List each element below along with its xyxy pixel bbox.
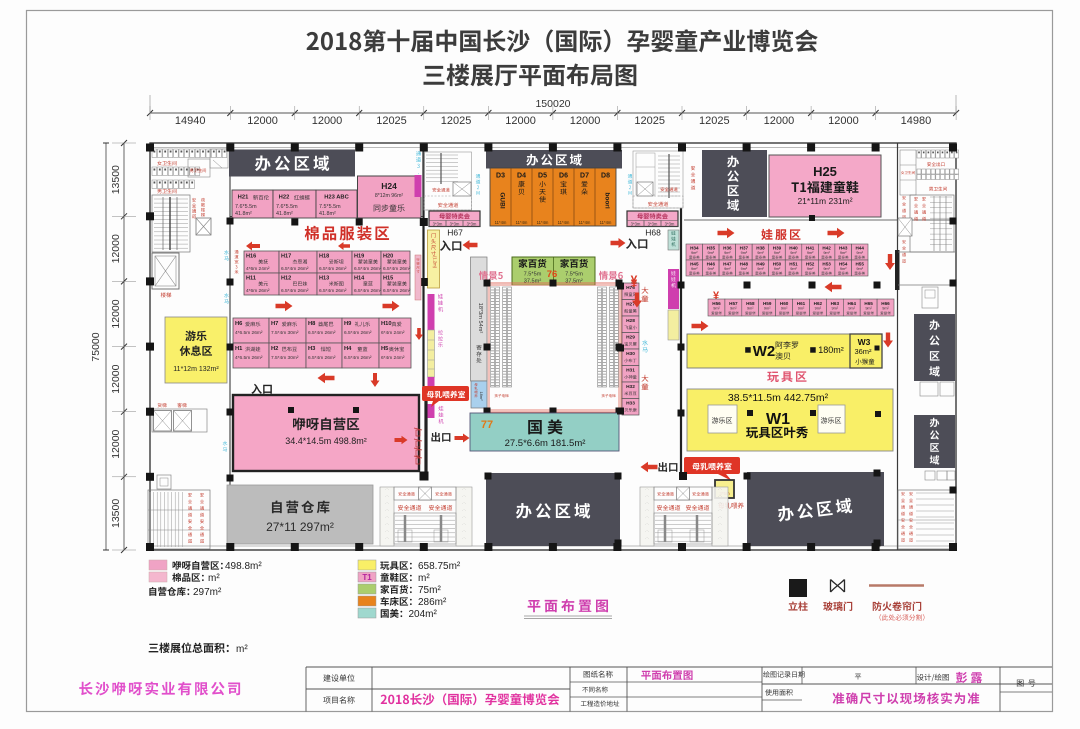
- svg-text:9m²: 9m²: [823, 251, 830, 255]
- svg-text:.·.: .·.: [645, 521, 649, 526]
- svg-text:H38: H38: [756, 246, 765, 251]
- svg-text:9m²: 9m²: [774, 251, 781, 255]
- svg-text:3*3m: 3*3m: [450, 221, 460, 226]
- svg-text:.·.: .·.: [718, 507, 722, 512]
- svg-text:H28: H28: [626, 318, 635, 324]
- svg-text:18*3m 54m²: 18*3m 54m²: [477, 303, 483, 334]
- svg-text:6.5*4m 26m²: 6.5*4m 26m²: [354, 288, 382, 294]
- svg-text:H1: H1: [235, 346, 243, 352]
- svg-text:4*6.5m 26m²: 4*6.5m 26m²: [235, 355, 263, 361]
- svg-text:11*12m 132m²: 11*12m 132m²: [173, 366, 219, 373]
- svg-text:180m²: 180m²: [818, 345, 844, 355]
- svg-text:H17: H17: [281, 254, 291, 260]
- svg-text:13500: 13500: [110, 499, 122, 528]
- svg-text:.·.: .·.: [462, 535, 466, 540]
- svg-text:.·.: .·.: [718, 528, 722, 533]
- svg-text:9m²: 9m²: [691, 251, 698, 255]
- svg-text:658.75m²: 658.75m²: [418, 561, 461, 572]
- svg-text:9m²: 9m²: [790, 267, 797, 271]
- svg-text:H55: H55: [855, 262, 864, 267]
- svg-text:37.5m²: 37.5m²: [524, 279, 542, 285]
- svg-text:boori: boori: [604, 192, 611, 208]
- svg-text:7.6*5.5m: 7.6*5.5m: [276, 204, 298, 210]
- svg-text:6.5*4m 26m²: 6.5*4m 26m²: [344, 355, 372, 361]
- svg-text:D3: D3: [496, 173, 505, 180]
- svg-text:6.5*4m 26m²: 6.5*4m 26m²: [281, 266, 309, 272]
- svg-text:27.5*6.6m 181.5m²: 27.5*6.6m 181.5m²: [505, 438, 586, 449]
- svg-text:12000: 12000: [110, 429, 122, 458]
- svg-text:.·.: .·.: [645, 493, 649, 498]
- svg-text:9m²: 9m²: [865, 307, 872, 311]
- svg-text:9m²: 9m²: [781, 307, 788, 311]
- svg-text:6.5*4m 26m²: 6.5*4m 26m²: [308, 355, 336, 361]
- svg-text:H23 ABC: H23 ABC: [324, 195, 349, 201]
- svg-text:11*4m: 11*4m: [537, 220, 549, 225]
- svg-text:H18: H18: [319, 254, 329, 260]
- svg-text:12000: 12000: [110, 234, 122, 263]
- svg-text:7.6*5.5m: 7.6*5.5m: [235, 204, 257, 210]
- svg-text:9m²: 9m²: [856, 251, 863, 255]
- svg-text:H53: H53: [822, 262, 831, 267]
- svg-text:297m²: 297m²: [193, 587, 222, 598]
- svg-text:H41: H41: [806, 246, 815, 251]
- svg-text:H45: H45: [690, 262, 699, 267]
- svg-text:7.5*5m: 7.5*5m: [565, 272, 583, 278]
- svg-text:.·.: .·.: [385, 493, 389, 498]
- svg-text:.·.: .·.: [645, 514, 649, 519]
- svg-text:H52: H52: [806, 262, 815, 267]
- svg-text:9m²: 9m²: [798, 307, 805, 311]
- svg-text:12000: 12000: [570, 115, 601, 127]
- svg-text:H10: H10: [381, 321, 392, 327]
- svg-text:H47: H47: [723, 262, 732, 267]
- svg-text:H40: H40: [789, 246, 798, 251]
- svg-text:9m²: 9m²: [790, 251, 797, 255]
- svg-text:6.5*4m 26m²: 6.5*4m 26m²: [383, 288, 411, 294]
- svg-text:H6: H6: [235, 321, 243, 327]
- svg-text:.·.: .·.: [385, 507, 389, 512]
- svg-text:.·.: .·.: [462, 486, 466, 491]
- svg-text:12000: 12000: [505, 115, 536, 127]
- svg-text:D4: D4: [517, 173, 526, 180]
- svg-text:7.5*4m 30m²: 7.5*4m 30m²: [271, 330, 299, 336]
- svg-text:H5: H5: [381, 346, 389, 352]
- svg-text:.·.: .·.: [462, 493, 466, 498]
- svg-text:12025: 12025: [376, 115, 407, 127]
- svg-text:11*4m: 11*4m: [600, 220, 612, 225]
- svg-text:6.5*4m 26m²: 6.5*4m 26m²: [281, 288, 309, 294]
- svg-text:H58: H58: [746, 301, 755, 306]
- svg-text:.·.: .·.: [718, 486, 722, 491]
- svg-text:41.8m²: 41.8m²: [319, 211, 336, 217]
- svg-text:7.5*5.5m: 7.5*5.5m: [319, 204, 341, 210]
- svg-text:H31: H31: [626, 368, 635, 374]
- svg-text:11*4m: 11*4m: [558, 220, 570, 225]
- svg-text:9m²: 9m²: [807, 251, 814, 255]
- svg-text:H14: H14: [354, 276, 365, 282]
- svg-text:14940: 14940: [175, 115, 206, 127]
- svg-text:H35: H35: [707, 246, 716, 251]
- svg-text:.·.: .·.: [462, 521, 466, 526]
- svg-text:6.5*4m 26m²: 6.5*4m 26m²: [319, 288, 347, 294]
- svg-text:D8: D8: [601, 173, 610, 180]
- svg-text:H22: H22: [279, 195, 290, 201]
- svg-text:.·.: .·.: [645, 500, 649, 505]
- svg-text:.·.: .·.: [385, 528, 389, 533]
- svg-text:.·.: .·.: [645, 528, 649, 533]
- svg-text:12025: 12025: [441, 115, 472, 127]
- svg-text:H4: H4: [344, 346, 352, 352]
- svg-text:H25: H25: [813, 164, 837, 179]
- svg-text:.·.: .·.: [718, 500, 722, 505]
- svg-text:11*4m: 11*4m: [579, 220, 591, 225]
- svg-text:H7: H7: [271, 321, 278, 327]
- svg-text:H64: H64: [847, 301, 856, 306]
- svg-text:.·.: .·.: [718, 535, 722, 540]
- svg-text:.·.: .·.: [645, 535, 649, 540]
- svg-text:.·.: .·.: [645, 507, 649, 512]
- svg-text:H62: H62: [814, 301, 823, 306]
- svg-text:77: 77: [481, 419, 493, 431]
- svg-text:12000: 12000: [110, 364, 122, 393]
- svg-text:9m²: 9m²: [823, 267, 830, 271]
- svg-text:H67: H67: [447, 228, 463, 238]
- svg-text:D6: D6: [559, 173, 568, 180]
- svg-text:H54: H54: [839, 262, 848, 267]
- svg-text:H37: H37: [740, 246, 749, 251]
- svg-text:9m²: 9m²: [882, 307, 889, 311]
- svg-text:9m²: 9m²: [840, 251, 847, 255]
- svg-text:H61: H61: [797, 301, 806, 306]
- svg-text:9m²: 9m²: [741, 251, 748, 255]
- svg-text:W2: W2: [753, 343, 776, 360]
- svg-text:4*6m 26m²: 4*6m 26m²: [246, 288, 270, 294]
- svg-text:H12: H12: [281, 276, 291, 282]
- svg-text:¥: ¥: [631, 278, 638, 290]
- svg-text:12025: 12025: [699, 115, 730, 127]
- svg-text:H42: H42: [822, 246, 831, 251]
- svg-text:6.5*4m 26m²: 6.5*4m 26m²: [344, 330, 372, 336]
- svg-text:H9: H9: [344, 321, 352, 327]
- svg-text:H2: H2: [271, 346, 278, 352]
- svg-text:H68: H68: [645, 228, 661, 238]
- svg-text:W1: W1: [766, 411, 790, 428]
- svg-text:8*12m 96m²: 8*12m 96m²: [375, 193, 404, 199]
- svg-text:H39: H39: [773, 246, 782, 251]
- svg-text:12000: 12000: [247, 115, 278, 127]
- svg-text:(1.2m): (1.2m): [433, 256, 438, 269]
- svg-text:6.5*4m 26m²: 6.5*4m 26m²: [354, 266, 382, 272]
- svg-text:6.5*4m 26m²: 6.5*4m 26m²: [319, 266, 347, 272]
- svg-text:9m²: 9m²: [856, 267, 863, 271]
- svg-text:.·.: .·.: [385, 535, 389, 540]
- svg-text:76: 76: [547, 269, 558, 280]
- svg-text:9m²: 9m²: [724, 251, 731, 255]
- svg-text:13500: 13500: [110, 165, 122, 194]
- svg-text:H13: H13: [319, 276, 329, 282]
- svg-text:9m²: 9m²: [840, 267, 847, 271]
- svg-text:H36: H36: [723, 246, 732, 251]
- svg-text:.·.: .·.: [385, 500, 389, 505]
- svg-text:GUBI: GUBI: [499, 192, 506, 208]
- svg-text:9m²: 9m²: [757, 251, 764, 255]
- svg-text:204m²: 204m²: [409, 609, 438, 620]
- svg-text:H24: H24: [381, 181, 397, 191]
- svg-text:H60: H60: [780, 301, 789, 306]
- svg-text:41.8m²: 41.8m²: [276, 211, 293, 217]
- svg-text:27*11 297m²: 27*11 297m²: [266, 520, 334, 534]
- svg-text:9m²: 9m²: [708, 267, 715, 271]
- svg-text:9m²: 9m²: [815, 307, 822, 311]
- svg-text:m²: m²: [418, 573, 430, 584]
- svg-text:H66: H66: [881, 301, 890, 306]
- svg-text:7.5*4m 30m²: 7.5*4m 30m²: [271, 355, 299, 361]
- svg-text:4*6.5m 26m²: 4*6.5m 26m²: [235, 330, 263, 336]
- svg-text:.·.: .·.: [385, 486, 389, 491]
- svg-text:.·.: .·.: [462, 514, 466, 519]
- svg-text:11*4m: 11*4m: [495, 220, 507, 225]
- svg-text:12025: 12025: [634, 115, 665, 127]
- svg-text:.·.: .·.: [385, 514, 389, 519]
- svg-text:9m²: 9m²: [724, 267, 731, 271]
- svg-text:12000: 12000: [828, 115, 859, 127]
- svg-text:H59: H59: [763, 301, 772, 306]
- svg-text:9m²: 9m²: [757, 267, 764, 271]
- svg-text:6.5*4m 26m²: 6.5*4m 26m²: [308, 330, 336, 336]
- svg-text:.·.: .·.: [462, 507, 466, 512]
- svg-text:14980: 14980: [901, 115, 932, 127]
- svg-text:9m²: 9m²: [832, 307, 839, 311]
- svg-text:18m²: 18m²: [479, 391, 484, 401]
- svg-text:H11: H11: [246, 276, 256, 282]
- svg-text:T1: T1: [362, 573, 372, 582]
- svg-text:H16: H16: [246, 254, 256, 260]
- svg-text:.·.: .·.: [462, 500, 466, 505]
- svg-text:9m²: 9m²: [691, 267, 698, 271]
- svg-text:D5: D5: [538, 173, 547, 180]
- svg-text:75m²: 75m²: [418, 585, 441, 596]
- svg-text:3*3m: 3*3m: [648, 221, 658, 226]
- svg-text:34.4*14.5m 498.8m²: 34.4*14.5m 498.8m²: [285, 436, 367, 446]
- svg-text:9m²: 9m²: [713, 307, 720, 311]
- svg-text:H19: H19: [354, 254, 364, 260]
- svg-text:H43: H43: [839, 246, 848, 251]
- svg-text:9m²: 9m²: [708, 251, 715, 255]
- svg-text:H56: H56: [712, 301, 721, 306]
- svg-text:12000: 12000: [312, 115, 343, 127]
- svg-text:9m²: 9m²: [730, 307, 737, 311]
- svg-text:3*3m: 3*3m: [631, 221, 641, 226]
- svg-text:H20: H20: [383, 254, 393, 260]
- svg-text:.·.: .·.: [718, 521, 722, 526]
- svg-text:.·.: .·.: [385, 521, 389, 526]
- svg-text:9m²: 9m²: [764, 307, 771, 311]
- svg-text:37.5m²: 37.5m²: [565, 279, 583, 285]
- svg-text:9m²: 9m²: [741, 267, 748, 271]
- svg-text:H48: H48: [740, 262, 749, 267]
- svg-text:38.5*11.5m 442.75m²: 38.5*11.5m 442.75m²: [728, 392, 829, 404]
- svg-text:11*4m: 11*4m: [516, 220, 528, 225]
- svg-text:H33: H33: [626, 401, 635, 407]
- svg-text:.·.: .·.: [462, 528, 466, 533]
- svg-text:12000: 12000: [764, 115, 795, 127]
- svg-text:3*3m: 3*3m: [433, 221, 443, 226]
- svg-text:H30: H30: [626, 351, 635, 357]
- svg-text:W3: W3: [858, 337, 871, 347]
- svg-text:H8: H8: [308, 321, 316, 327]
- svg-text:m²: m²: [208, 573, 220, 584]
- svg-text:.·.: .·.: [718, 514, 722, 519]
- svg-text:9m²: 9m²: [807, 267, 814, 271]
- svg-text:H57: H57: [729, 301, 738, 306]
- svg-text:.·.: .·.: [718, 493, 722, 498]
- svg-text:41.8m²: 41.8m²: [235, 211, 252, 217]
- svg-text:m²: m²: [236, 644, 248, 655]
- svg-text:H63: H63: [831, 301, 840, 306]
- svg-text:H46: H46: [707, 262, 716, 267]
- svg-text:4*6m 24m²: 4*6m 24m²: [246, 266, 270, 272]
- svg-text:9m²: 9m²: [747, 307, 754, 311]
- svg-text:9m²: 9m²: [774, 267, 781, 271]
- svg-text:H15: H15: [383, 276, 393, 282]
- svg-text:H44: H44: [855, 246, 864, 251]
- svg-text:9m²: 9m²: [848, 307, 855, 311]
- svg-text:H65: H65: [864, 301, 873, 306]
- svg-text:12000: 12000: [110, 299, 122, 328]
- svg-text:498.8m²: 498.8m²: [225, 561, 262, 572]
- svg-text:H34: H34: [690, 246, 699, 251]
- svg-text:6*4m 24m²: 6*4m 24m²: [381, 330, 405, 336]
- svg-text:6*4m 24m²: 6*4m 24m²: [381, 355, 405, 361]
- svg-text:H29: H29: [626, 335, 635, 341]
- svg-text:H32: H32: [626, 384, 635, 390]
- svg-text:6.5*4m 26m²: 6.5*4m 26m²: [383, 266, 411, 272]
- svg-text:36m²: 36m²: [854, 347, 872, 356]
- svg-text:H49: H49: [756, 262, 765, 267]
- svg-text:D7: D7: [580, 173, 589, 180]
- svg-text:H51: H51: [789, 262, 798, 267]
- svg-text:3*3m: 3*3m: [665, 221, 675, 226]
- svg-text:.·.: .·.: [645, 486, 649, 491]
- svg-text:21*11m 231m²: 21*11m 231m²: [797, 196, 852, 206]
- svg-text:H3: H3: [308, 346, 316, 352]
- svg-text:3*3m: 3*3m: [467, 221, 477, 226]
- svg-text:H50: H50: [773, 262, 782, 267]
- svg-text:7.5*5m: 7.5*5m: [524, 272, 542, 278]
- svg-text:H21: H21: [238, 195, 249, 201]
- svg-text:286m²: 286m²: [418, 597, 447, 608]
- svg-text:75000: 75000: [90, 332, 102, 361]
